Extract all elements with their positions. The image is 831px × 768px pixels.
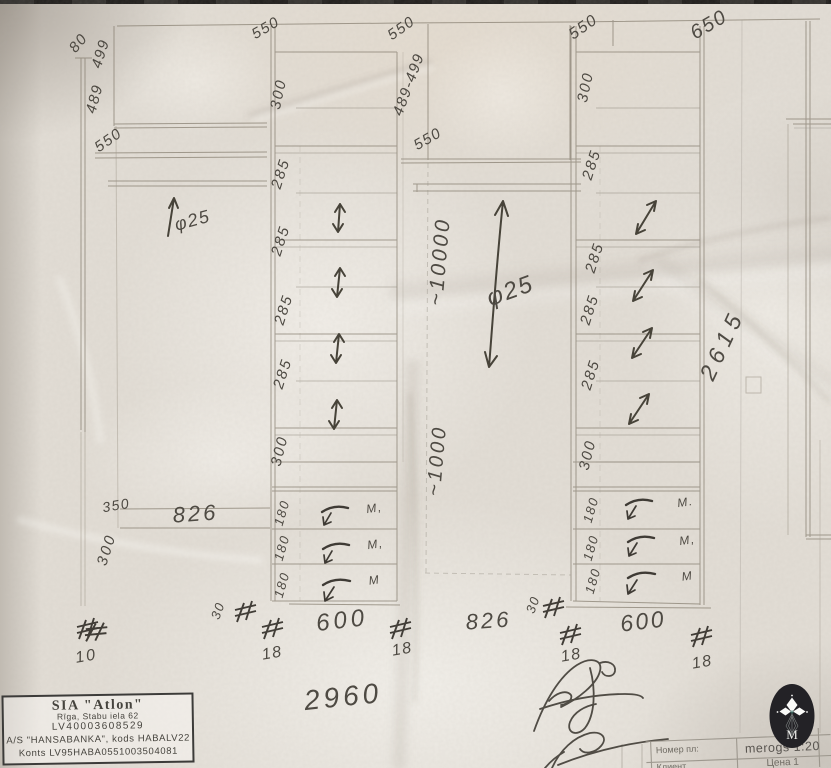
svg-text:φ25: φ25: [172, 206, 212, 235]
svg-text:30: 30: [208, 600, 228, 622]
svg-text:550: 550: [566, 11, 601, 43]
svg-text:φ25: φ25: [483, 270, 538, 312]
svg-text:180: 180: [580, 533, 602, 562]
svg-text:300: 300: [267, 77, 290, 111]
svg-text:285: 285: [578, 357, 604, 393]
svg-text:80: 80: [66, 30, 92, 56]
svg-text:18: 18: [261, 643, 284, 663]
svg-text:489: 489: [83, 82, 107, 115]
svg-text:285: 285: [271, 292, 297, 328]
svg-text:285: 285: [268, 156, 294, 192]
svg-text:600: 600: [315, 604, 370, 637]
svg-text:~1000: ~1000: [423, 424, 451, 497]
svg-text:M: M: [786, 727, 798, 742]
svg-text:Номер пл:: Номер пл:: [656, 744, 699, 756]
svg-text:300: 300: [94, 532, 120, 568]
svg-text:285: 285: [268, 223, 294, 259]
svg-text:550: 550: [384, 13, 418, 44]
svg-text:285: 285: [577, 292, 603, 328]
svg-text:300: 300: [576, 438, 600, 472]
svg-text:180: 180: [271, 498, 293, 527]
svg-text:180: 180: [271, 570, 293, 599]
svg-text:499: 499: [88, 37, 113, 70]
svg-text:285: 285: [582, 240, 608, 276]
svg-text:600: 600: [619, 605, 668, 636]
svg-text:180: 180: [580, 495, 602, 524]
svg-text:350: 350: [101, 495, 131, 516]
svg-text:826: 826: [465, 606, 512, 634]
svg-text:489-499: 489-499: [390, 51, 428, 118]
svg-text:M.: M.: [676, 494, 694, 510]
svg-text:2960: 2960: [301, 677, 383, 716]
svg-text:merogs 1:20: merogs 1:20: [745, 739, 820, 756]
svg-text:18: 18: [560, 645, 583, 665]
svg-text:300: 300: [574, 70, 597, 104]
svg-text:M,: M,: [366, 536, 384, 552]
svg-text:550: 550: [249, 13, 283, 42]
svg-text:826: 826: [172, 499, 219, 527]
svg-text:30: 30: [523, 594, 543, 616]
svg-text:285: 285: [270, 356, 296, 392]
svg-text:~10000: ~10000: [424, 216, 455, 306]
svg-text:650: 650: [686, 5, 731, 44]
svg-text:M,: M,: [365, 500, 383, 516]
svg-text:180: 180: [582, 566, 604, 595]
svg-text:M: M: [368, 572, 381, 587]
svg-text:18: 18: [391, 639, 414, 659]
svg-text:2615: 2615: [694, 305, 750, 385]
svg-text:Клиент: Клиент: [656, 761, 686, 768]
svg-text:M,: M,: [678, 532, 696, 548]
svg-text:M: M: [681, 568, 694, 583]
svg-text:Цена 1: Цена 1: [766, 757, 799, 768]
svg-text:10: 10: [74, 646, 98, 667]
svg-text:180: 180: [271, 533, 293, 562]
svg-text:300: 300: [268, 434, 292, 468]
svg-text:550: 550: [411, 124, 445, 153]
svg-text:285: 285: [579, 147, 605, 183]
svg-text:550: 550: [91, 125, 125, 156]
svg-text:18: 18: [691, 652, 714, 672]
